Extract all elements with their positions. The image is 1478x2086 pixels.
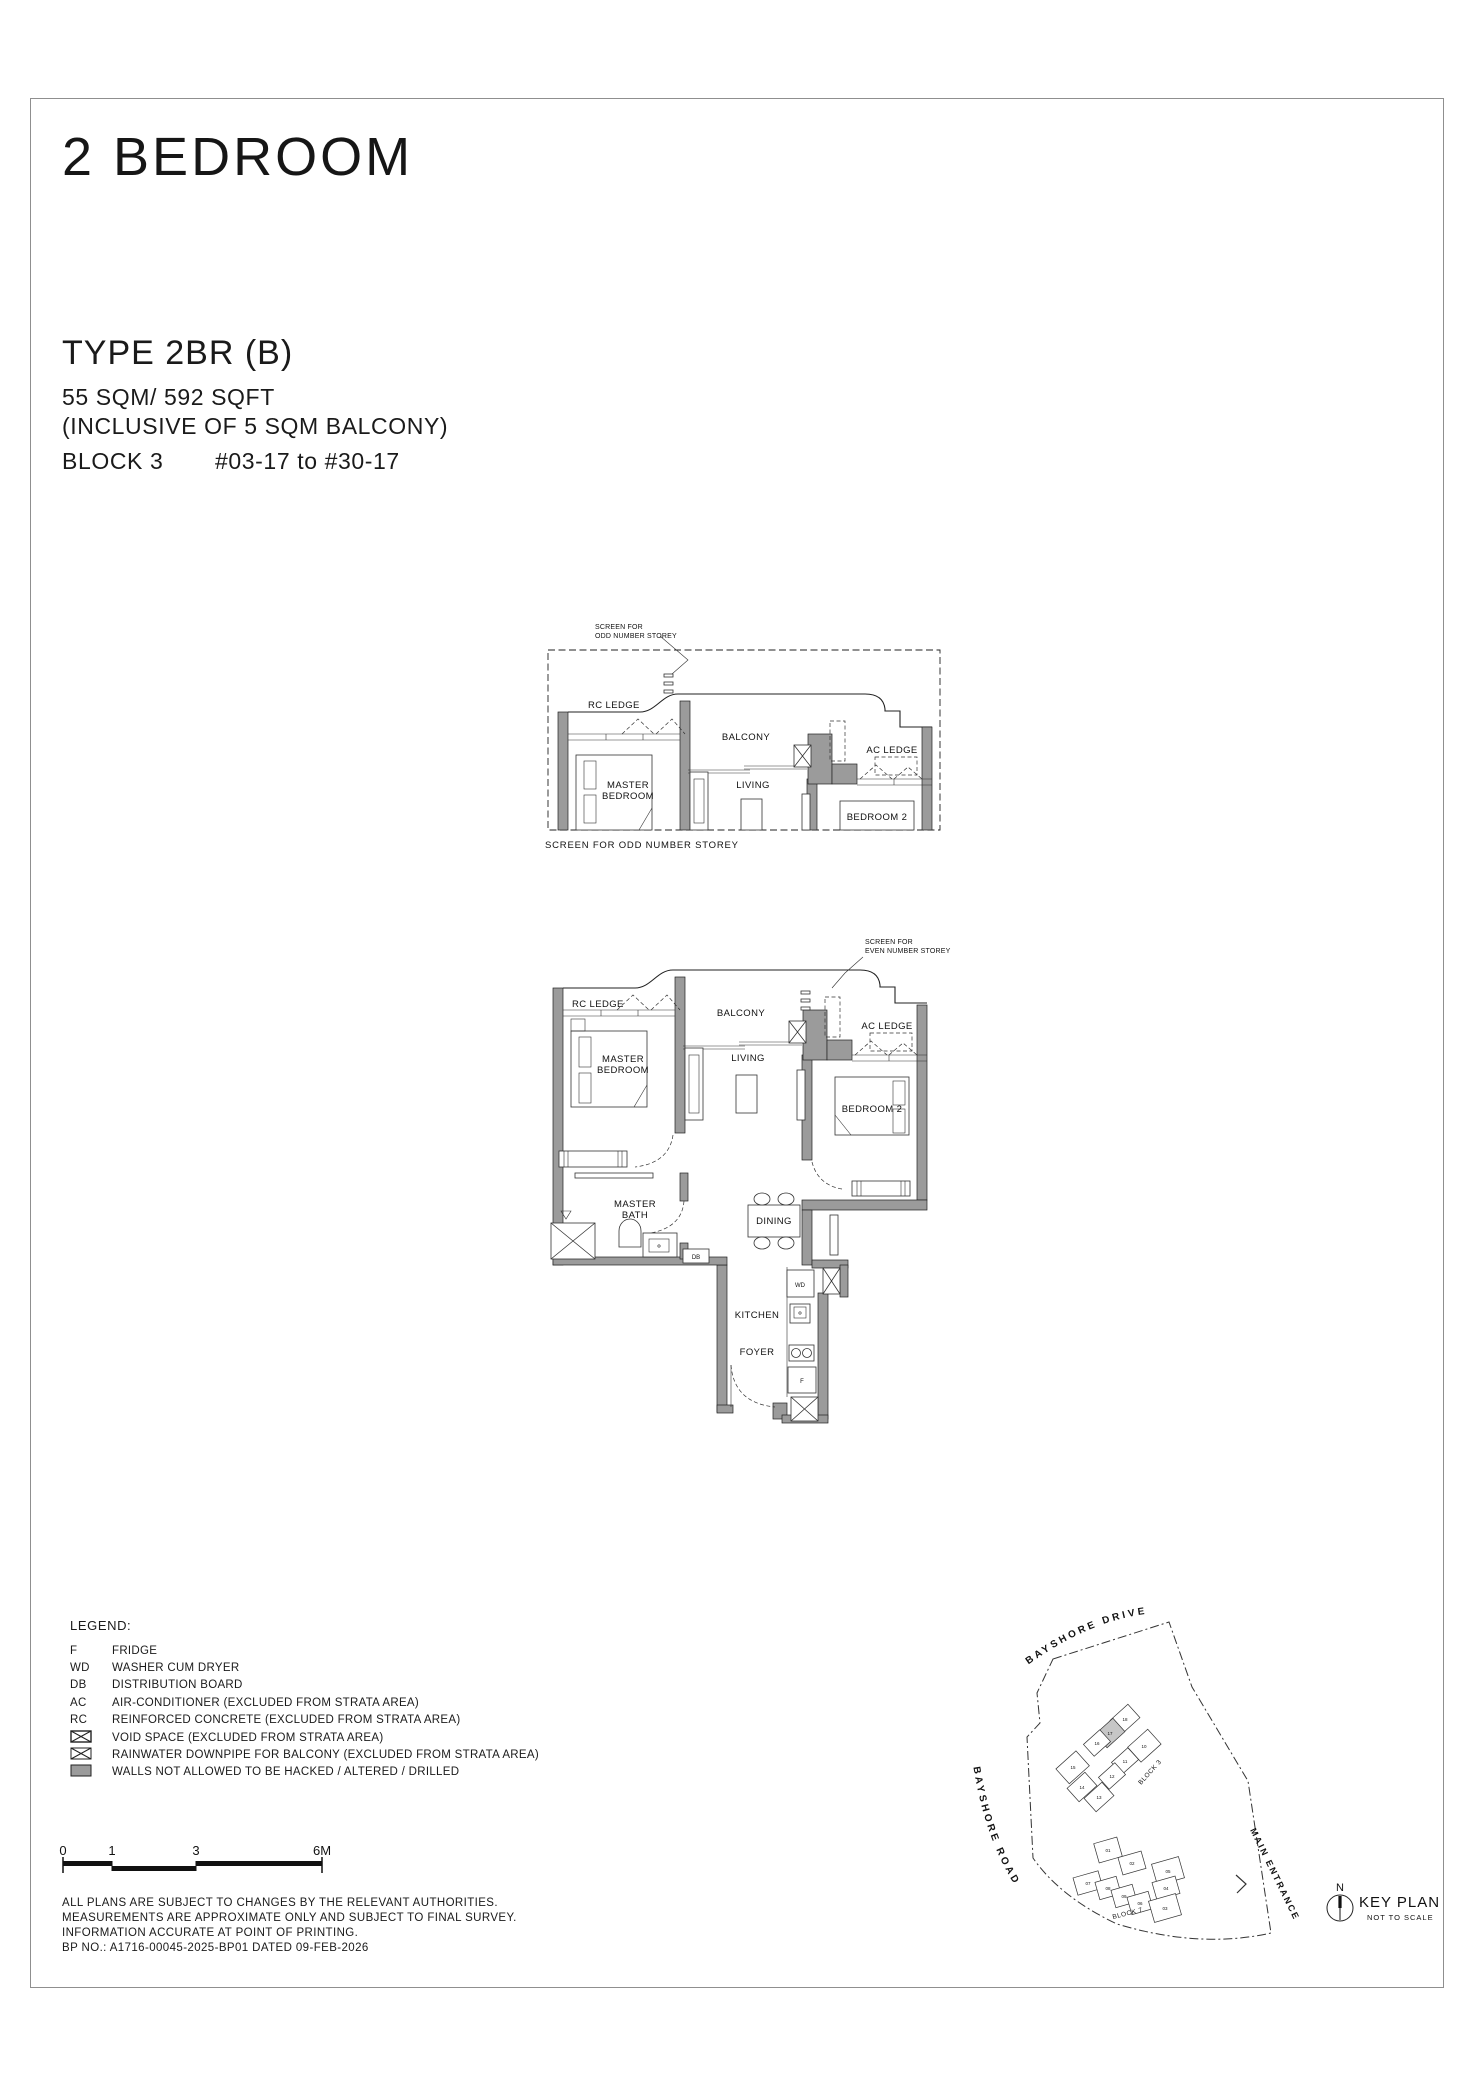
even-annotation-leader-line — [832, 957, 863, 988]
scale-tick-3: 3 — [192, 1843, 199, 1858]
keyplan-unit-number: 08 — [1105, 1886, 1111, 1891]
even-master-bedroom-furniture — [559, 1019, 653, 1178]
keyplan-block3-cluster: 18 17 16 10 15 11 12 14 13 BLOCK 3 — [1056, 1704, 1163, 1811]
page-title: 2 BEDROOM — [62, 126, 413, 188]
unit-type-name: TYPE 2BR (B) — [62, 334, 293, 373]
keyplan-unit-number: 10 — [1141, 1744, 1147, 1749]
keyplan-unit-number: 13 — [1096, 1795, 1102, 1800]
odd-label-balcony: BALCONY — [722, 732, 770, 743]
odd-rc-ledge-window — [568, 719, 685, 740]
odd-label-master-bedroom-2: BEDROOM — [602, 791, 654, 802]
north-arrow: N — [1327, 1882, 1353, 1921]
legend-item-fridge: F FRIDGE — [70, 1642, 590, 1659]
keyplan-block7-label: BLOCK 7 — [1112, 1907, 1144, 1921]
scale-bar: 0 1 3 6M — [55, 1843, 395, 1883]
void-space-icon — [70, 1730, 112, 1746]
odd-plan-caption: SCREEN FOR ODD NUMBER STOREY — [545, 840, 739, 851]
even-label-kitchen: KITCHEN — [735, 1310, 780, 1321]
even-label-master-bath-2: BATH — [622, 1210, 648, 1221]
floor-plan-odd-storey: SCREEN FOR ODD NUMBER STOREY — [540, 612, 950, 857]
odd-label-ac-ledge: AC LEDGE — [866, 745, 917, 756]
footnote-line-3: INFORMATION ACCURATE AT POINT OF PRINTIN… — [62, 1926, 517, 1941]
unit-area: 55 SQM/ 592 SQFT — [62, 384, 275, 411]
legend-item-rainwater: RAINWATER DOWNPIPE FOR BALCONY (EXCLUDED… — [70, 1746, 590, 1763]
site-boundary — [1027, 1622, 1271, 1939]
keyplan-unit-number: 09 — [1121, 1894, 1127, 1899]
footnote-line-4: BP NO.: A1716-00045-2025-BP01 DATED 09-F… — [62, 1941, 517, 1956]
even-label-wd: WD — [795, 1283, 806, 1289]
even-label-balcony: BALCONY — [717, 1008, 765, 1019]
even-screen-track-bars — [801, 991, 810, 1010]
even-label-master-bedroom-1: MASTER — [602, 1054, 644, 1065]
main-entrance-arrow — [1236, 1875, 1246, 1893]
stack-range: #03-17 to #30-17 — [215, 448, 400, 474]
footnote-line-1: ALL PLANS ARE SUBJECT TO CHANGES BY THE … — [62, 1896, 517, 1911]
floor-plan-even-storey: SCREEN FOR EVEN NUMBER STOREY — [535, 915, 955, 1430]
even-label-db: DB — [692, 1255, 700, 1261]
keyplan-unit-number: 11 — [1123, 1759, 1128, 1764]
road-label-main-entrance: MAIN ENTRANCE — [1248, 1826, 1301, 1922]
unit-area-note: (INCLUSIVE OF 5 SQM BALCONY) — [62, 413, 448, 440]
keyplan-title: KEY PLAN — [1359, 1894, 1440, 1911]
even-label-rc-ledge: RC LEDGE — [572, 999, 624, 1010]
odd-label-rc-ledge: RC LEDGE — [588, 700, 640, 711]
legend-item-db: DB DISTRIBUTION BOARD — [70, 1677, 590, 1694]
legend: LEGEND: F FRIDGE WD WASHER CUM DRYER DB … — [70, 1618, 590, 1781]
keyplan-block3-label: BLOCK 3 — [1137, 1759, 1163, 1787]
odd-label-living: LIVING — [736, 780, 770, 791]
even-rainwater-downpipe-box — [789, 1021, 806, 1043]
even-label-master-bath-1: MASTER — [614, 1199, 656, 1210]
odd-screen-annotation-line1: SCREEN FOR — [595, 624, 643, 631]
scale-bar-segments — [63, 1857, 322, 1873]
keyplan-unit-number: 05 — [1165, 1869, 1171, 1874]
keyplan-unit-number: 01 — [1105, 1848, 1111, 1853]
even-screen-annotation-line2: EVEN NUMBER STOREY — [865, 948, 951, 955]
keyplan-unit-number: 02 — [1129, 1861, 1135, 1866]
rainwater-downpipe-icon — [70, 1747, 112, 1763]
keyplan-unit-number: 03 — [1162, 1906, 1168, 1911]
block-label: BLOCK 3 — [62, 448, 215, 475]
odd-annotation-leader-line — [660, 636, 688, 674]
keyplan-unit-number: 15 — [1070, 1765, 1076, 1770]
keyplan-unit-number: 04 — [1163, 1886, 1169, 1891]
road-label-bayshore-drive: BAYSHORE DRIVE — [1024, 1606, 1148, 1667]
legend-item-walls: WALLS NOT ALLOWED TO BE HACKED / ALTERED… — [70, 1764, 590, 1781]
keyplan-unit-number: 16 — [1094, 1741, 1100, 1746]
north-label: N — [1336, 1882, 1344, 1894]
legend-item-ac: AC AIR-CONDITIONER (EXCLUDED FROM STRATA… — [70, 1694, 590, 1711]
keyplan-unit-number: 14 — [1079, 1785, 1085, 1790]
legend-item-void: VOID SPACE (EXCLUDED FROM STRATA AREA) — [70, 1729, 590, 1746]
keyplan-unit-number: 12 — [1109, 1774, 1115, 1779]
keyplan-unit-number: 06 — [1137, 1901, 1143, 1906]
keyplan-unit-number: 17 — [1107, 1731, 1113, 1736]
keyplan-subtitle: NOT TO SCALE — [1367, 1913, 1434, 1922]
legend-item-washer: WD WASHER CUM DRYER — [70, 1659, 590, 1676]
legend-item-rc: RC REINFORCED CONCRETE (EXCLUDED FROM ST… — [70, 1712, 590, 1729]
even-label-ac-ledge: AC LEDGE — [861, 1021, 912, 1032]
even-label-f: F — [800, 1379, 804, 1385]
keyplan-unit-number: 07 — [1085, 1881, 1091, 1886]
footnote-line-2: MEASUREMENTS ARE APPROXIMATE ONLY AND SU… — [62, 1911, 517, 1926]
keyplan-unit-number: 18 — [1122, 1717, 1128, 1722]
scale-tick-6m: 6M — [313, 1843, 331, 1858]
scale-tick-1: 1 — [108, 1843, 115, 1858]
key-plan: BAYSHORE DRIVE BAYSHORE ROAD MAIN ENTRAN… — [945, 1575, 1450, 1985]
odd-screen-annotation-line2: ODD NUMBER STOREY — [595, 633, 677, 640]
floorplan-page: 2 BEDROOM TYPE 2BR (B) 55 SQM/ 592 SQFT … — [0, 0, 1478, 2086]
shaded-wall-icon — [70, 1764, 112, 1780]
even-screen-annotation-line1: SCREEN FOR — [865, 939, 913, 946]
unit-block-line: BLOCK 3#03-17 to #30-17 — [62, 448, 400, 475]
odd-label-bedroom2: BEDROOM 2 — [847, 812, 908, 823]
odd-label-master-bedroom-1: MASTER — [607, 780, 649, 791]
even-label-master-bedroom-2: BEDROOM — [597, 1065, 649, 1076]
footnotes: ALL PLANS ARE SUBJECT TO CHANGES BY THE … — [62, 1896, 517, 1956]
even-bedroom2-furniture — [835, 1077, 910, 1196]
even-label-living: LIVING — [731, 1053, 765, 1064]
scale-tick-0: 0 — [59, 1843, 66, 1858]
road-label-bayshore-road: BAYSHORE ROAD — [970, 1766, 1022, 1888]
even-label-foyer: FOYER — [740, 1347, 775, 1358]
keyplan-block7-cluster: 01 02 05 07 08 04 09 06 03 BLOCK 7 — [1073, 1837, 1184, 1922]
odd-rainwater-downpipe-box — [794, 745, 811, 767]
even-label-dining: DINING — [756, 1216, 792, 1227]
legend-heading: LEGEND: — [70, 1618, 590, 1633]
odd-screen-track-bars — [664, 674, 673, 693]
even-label-bedroom2: BEDROOM 2 — [842, 1104, 903, 1115]
even-master-bath-fixtures — [551, 1211, 677, 1259]
